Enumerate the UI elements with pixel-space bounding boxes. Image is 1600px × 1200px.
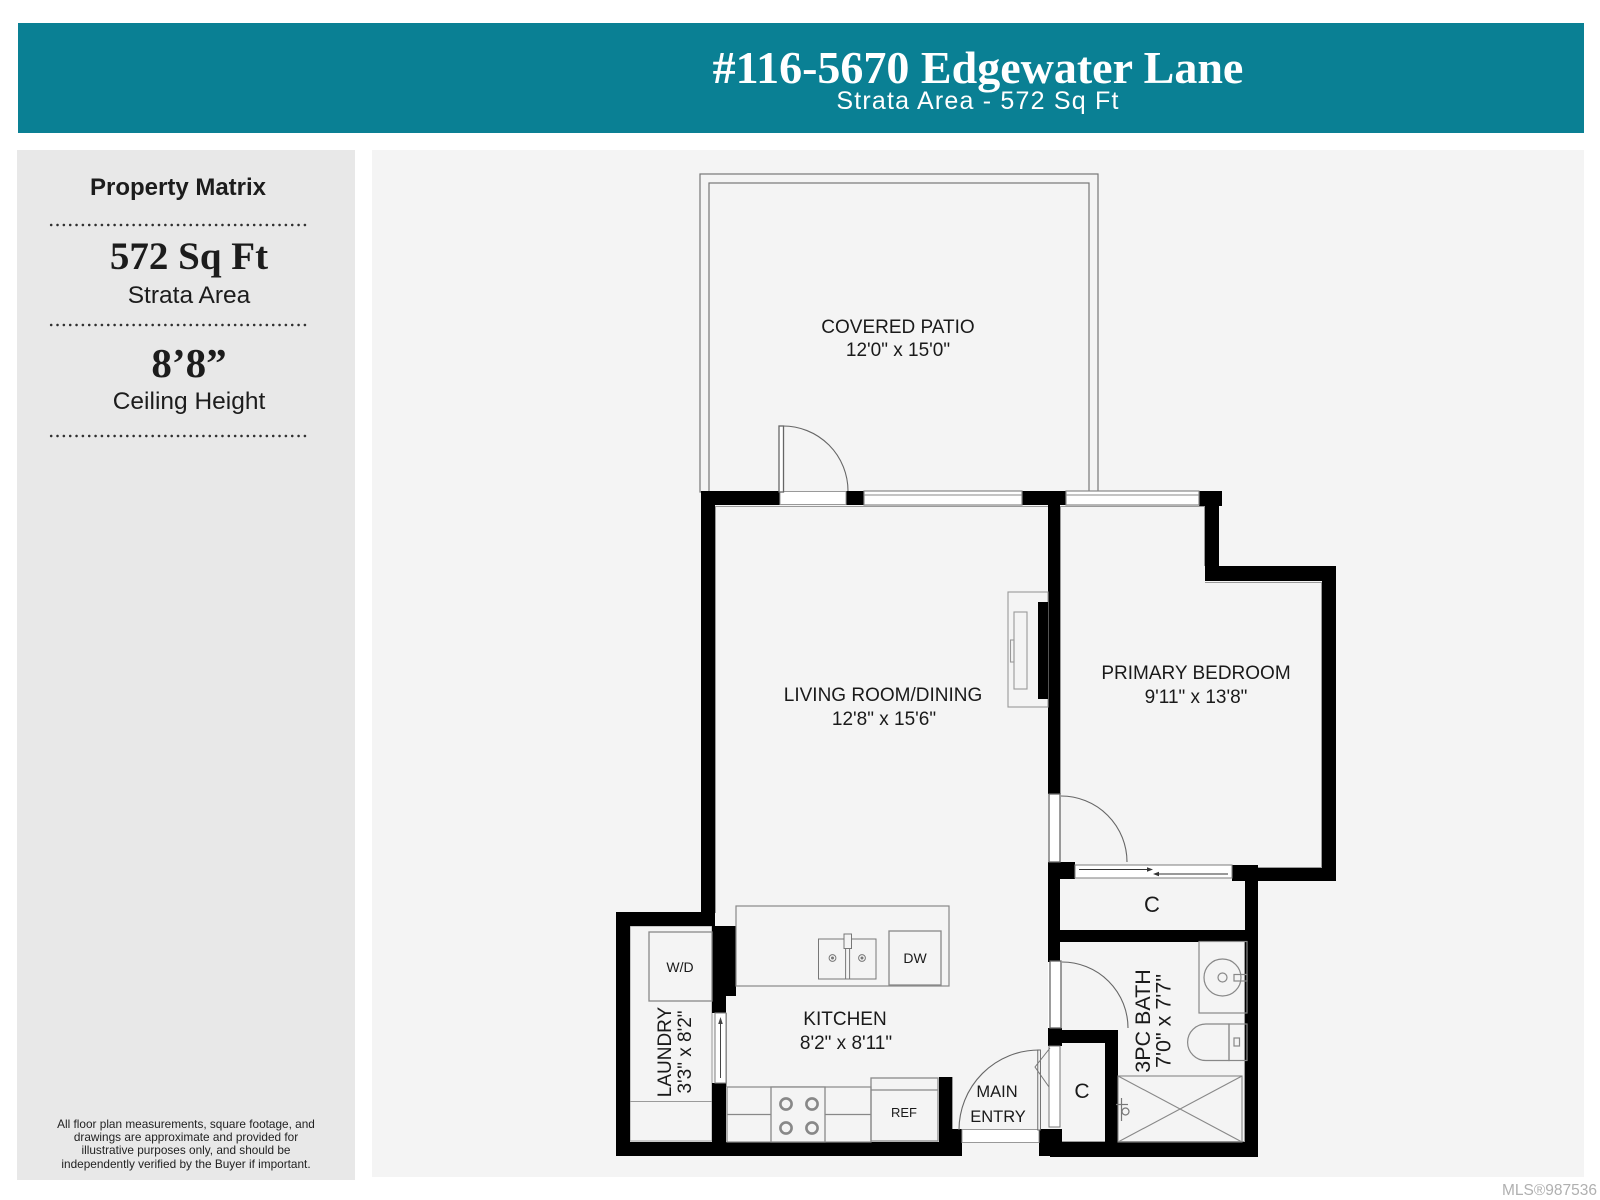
svg-text:DW: DW xyxy=(903,950,927,966)
svg-text:C: C xyxy=(1074,1080,1089,1103)
svg-text:KITCHEN: KITCHEN xyxy=(803,1009,886,1030)
svg-text:ENTRY: ENTRY xyxy=(970,1108,1026,1126)
svg-text:12'8" x 15'6": 12'8" x 15'6" xyxy=(832,709,936,730)
svg-text:7'0" x 7'7": 7'0" x 7'7" xyxy=(1152,974,1176,1068)
svg-text:9'11" x 13'8": 9'11" x 13'8" xyxy=(1145,687,1248,708)
svg-text:REF: REF xyxy=(891,1105,917,1120)
svg-text:W/D: W/D xyxy=(666,959,693,975)
svg-text:3'3" x 8'2": 3'3" x 8'2" xyxy=(675,1010,696,1093)
svg-text:C: C xyxy=(1144,892,1160,917)
svg-text:LIVING ROOM/DINING: LIVING ROOM/DINING xyxy=(784,685,982,706)
svg-text:8'2" x 8'11": 8'2" x 8'11" xyxy=(800,1033,892,1054)
svg-text:12'0" x 15'0": 12'0" x 15'0" xyxy=(846,340,950,361)
svg-text:MAIN: MAIN xyxy=(976,1083,1017,1101)
svg-text:LAUNDRY: LAUNDRY xyxy=(655,1006,676,1097)
svg-text:COVERED PATIO: COVERED PATIO xyxy=(821,317,974,338)
svg-text:PRIMARY BEDROOM: PRIMARY BEDROOM xyxy=(1101,663,1290,684)
